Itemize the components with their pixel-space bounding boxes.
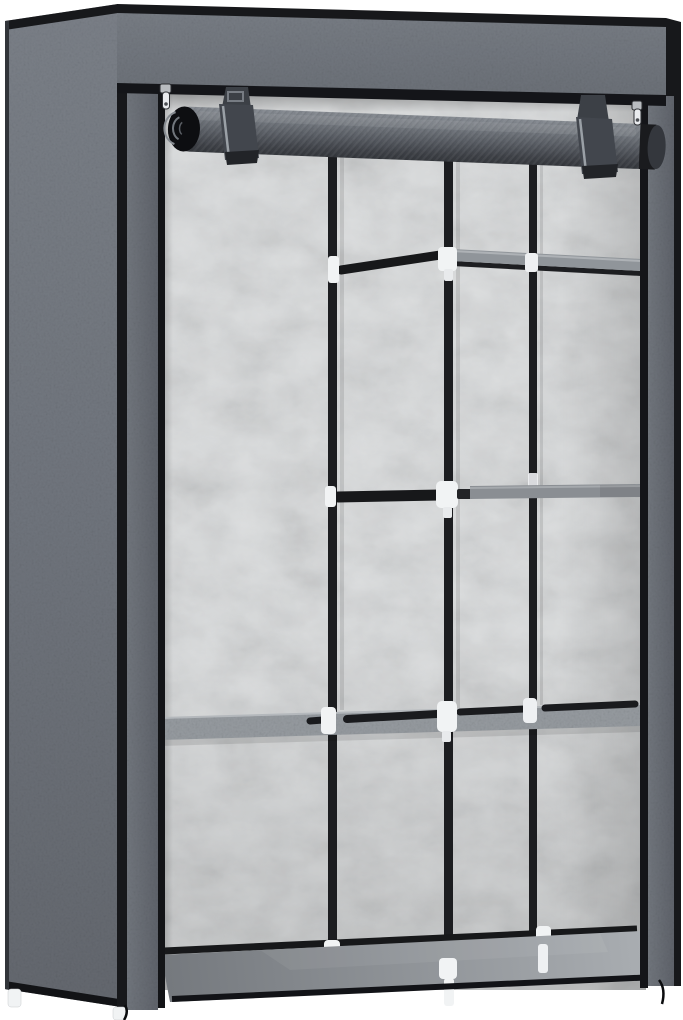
side-panel-texture [5,4,121,1007]
connector-upper-right [525,253,538,272]
interior-back-panel [160,90,646,990]
zipper-right-hole [636,118,640,122]
right-zipper-pull [632,101,642,125]
left-frame-outer-trim [117,86,127,1010]
connector-shelf-middle-foot [442,731,451,742]
front-frame-left [117,86,165,1010]
pole-right [529,156,537,936]
side-panel-left-edge [5,21,9,990]
connector-upper-left [328,256,339,283]
pole-shadow-1 [340,155,344,710]
shelf-rod-b [460,709,524,712]
zipper-left-hole [164,102,168,106]
pole-shadow-2 [456,158,460,708]
wardrobe-photo [0,0,683,1020]
foot-right-pole [538,944,548,973]
strap-right-wrap [582,164,618,179]
hanging-rod-middle [338,495,440,497]
connector-shelf-middle [437,701,457,732]
connector-upper-middle-foot [444,269,453,281]
shelf-rod-a [347,714,437,719]
connector-shelf-left [321,707,336,734]
zipper-right-tab [634,109,641,125]
pole-shadow-3 [540,160,543,705]
connector-mid-middle-foot [443,507,452,518]
strap-left-wrap [225,150,259,165]
foot-middle-pole [444,978,454,1006]
left-frame-inner-trim [158,90,165,1008]
foot-far-left [8,989,21,1007]
top-cover-box [117,4,666,106]
connector-shelf-right [523,698,537,723]
right-frame-texture [648,94,674,986]
right-frame-inner-trim [640,94,648,988]
left-frame-texture [127,86,158,1010]
connector-bottom-middle [439,958,457,979]
shelf-rod-c [545,704,635,708]
shelf-edge-shade [600,485,641,497]
connector-mid-middle [436,481,458,508]
left-side-panel [5,4,121,1007]
product-photo-stage [0,0,683,1020]
zipper-left-tab [163,92,170,109]
connector-mid-left [325,486,336,507]
connector-upper-middle [438,247,457,271]
